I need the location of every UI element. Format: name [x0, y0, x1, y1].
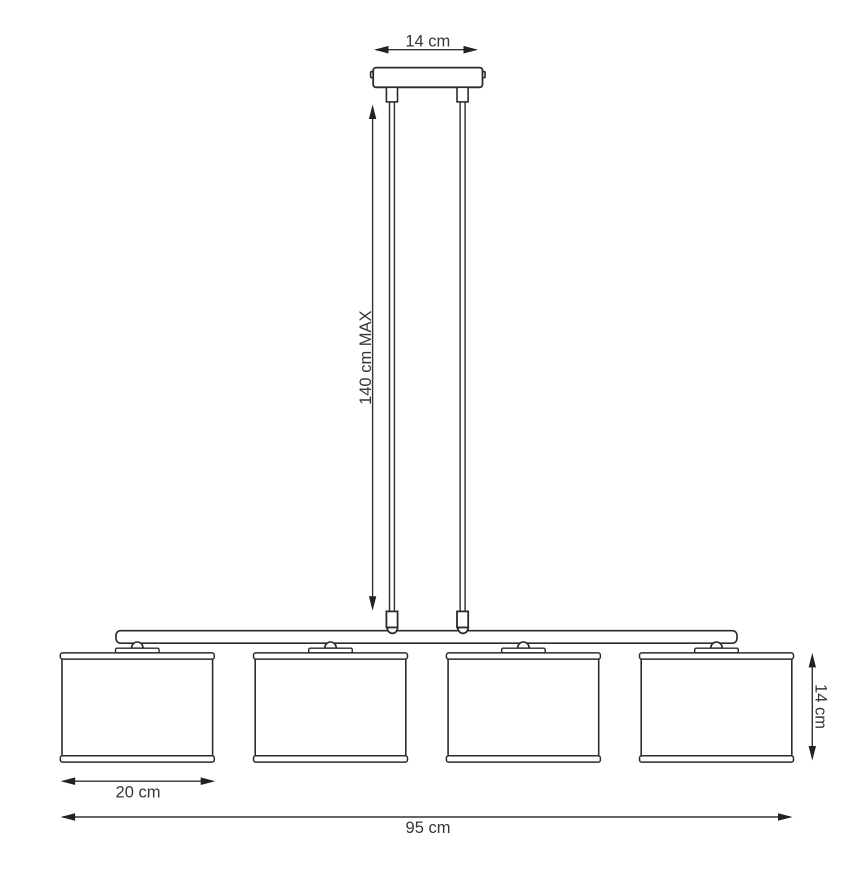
- svg-text:95 cm: 95 cm: [406, 819, 451, 837]
- svg-text:14 cm: 14 cm: [811, 684, 829, 729]
- svg-text:20 cm: 20 cm: [116, 784, 161, 802]
- svg-text:140 cm MAX: 140 cm MAX: [357, 310, 375, 404]
- svg-text:14 cm: 14 cm: [405, 32, 450, 50]
